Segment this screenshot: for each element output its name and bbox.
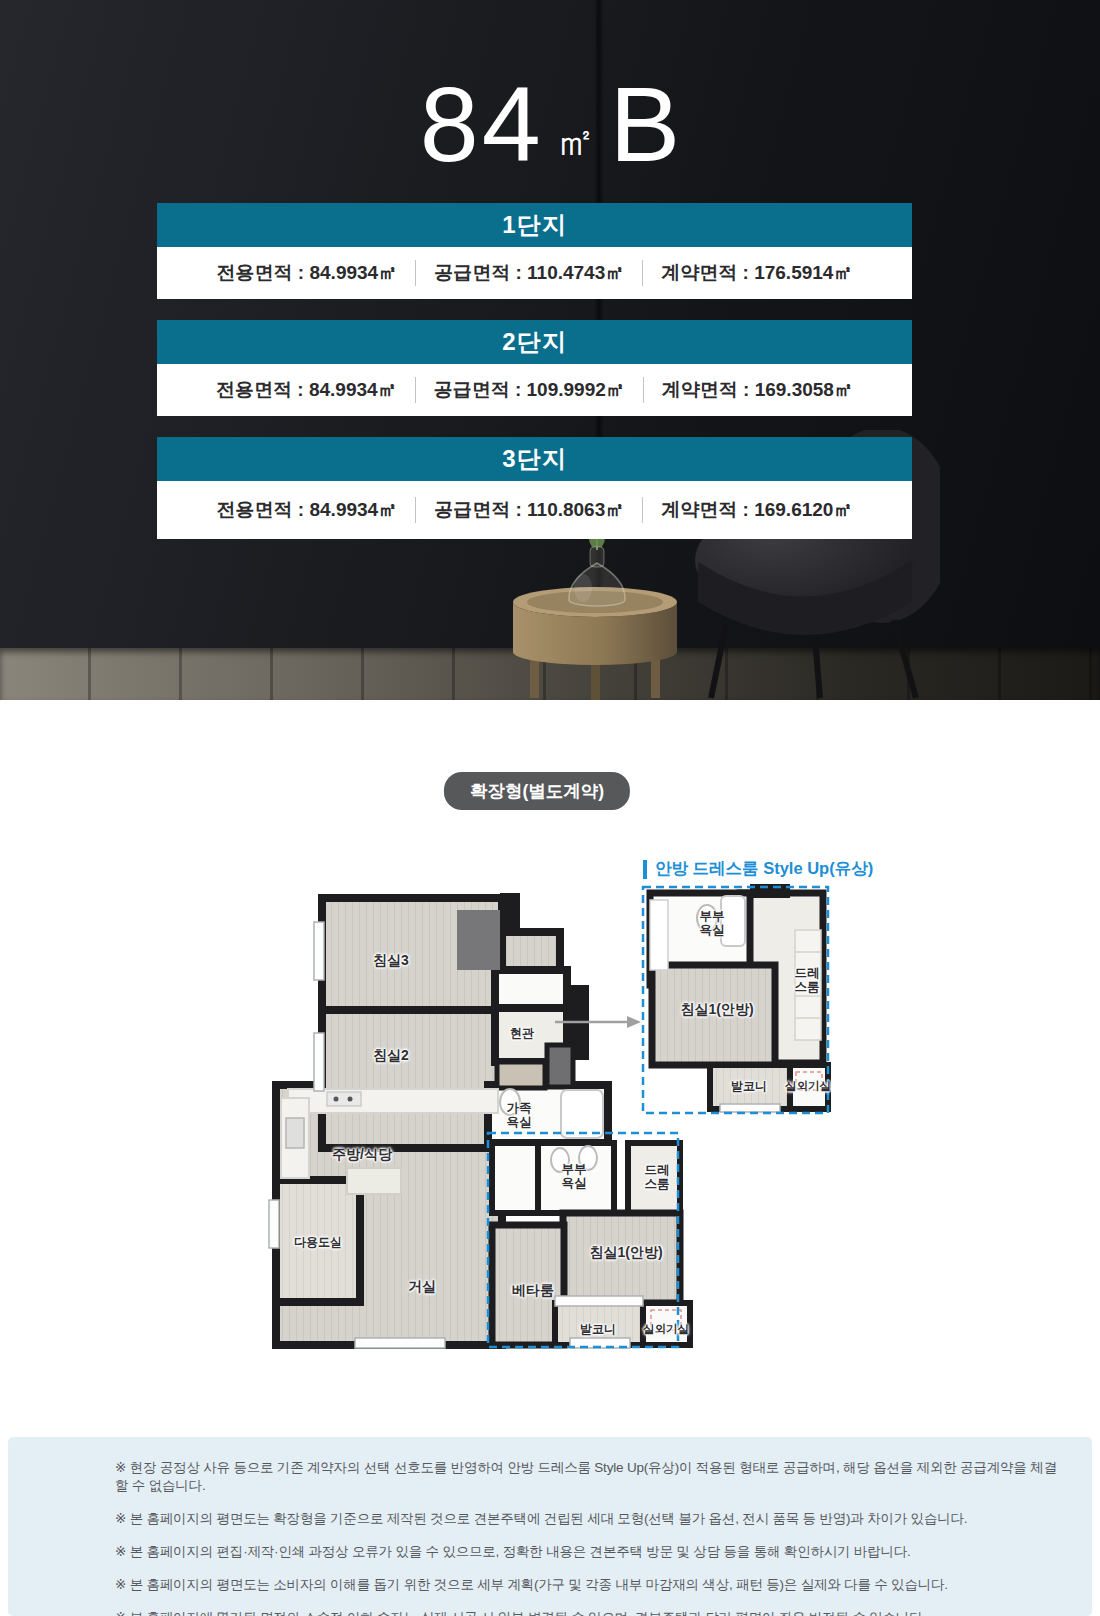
complex-3-title: 3단지	[157, 437, 912, 481]
inset-room-label-master-bedroom: 침실1(안방)	[680, 1001, 753, 1019]
notice-line-5: ※ 본 홈페이지에 명기된 면적의 소수점 이하 숫자는 실제 시공 시 일부 …	[115, 1609, 1062, 1616]
divider	[642, 497, 643, 523]
divider	[642, 260, 643, 286]
notice-line-1: ※ 현장 공정상 사유 등으로 기존 계약자의 선택 선호도를 반영하여 안방 …	[115, 1459, 1062, 1495]
room-label-beta-room: 베타룸	[512, 1282, 554, 1300]
complex-3-group: 3단지 전용면적 : 84.9934㎡ 공급면적 : 110.8063㎡ 계약면…	[157, 437, 912, 539]
notice-line-2: ※ 본 홈페이지의 평면도는 확장형을 기준으로 제작된 것으로 견본주택에 건…	[115, 1510, 1062, 1528]
floorplan-area: 침실3 침실2 현관 가족욕실 주방/식당 다용도실 거실 부부욕실 드레스룸 …	[255, 870, 845, 1360]
notice-box: ※ 현장 공정상 사유 등으로 기존 계약자의 선택 선호도를 반영하여 안방 …	[8, 1437, 1092, 1616]
room-label-balcony: 발코니	[580, 1321, 616, 1338]
divider	[643, 377, 644, 403]
inset-room-label-ac-room: 실외기실	[785, 1079, 831, 1094]
complex-1-group: 1단지 전용면적 : 84.9934㎡ 공급면적 : 110.4743㎡ 계약면…	[157, 203, 912, 299]
inset-room-label-master-bath: 부부욕실	[698, 909, 726, 937]
expansion-type-badge: 확장형(별도계약)	[444, 772, 630, 810]
complex-1-supply-area: 공급면적 : 110.4743㎡	[434, 260, 624, 286]
room-label-family-bath: 가족욕실	[505, 1101, 533, 1129]
complex-1-title: 1단지	[157, 203, 912, 247]
divider	[415, 377, 416, 403]
unit-size: 84	[420, 65, 544, 183]
complex-2-contract-area: 계약면적 : 169.3058㎡	[662, 377, 853, 403]
inset-room-label-dressroom: 드레스룸	[793, 966, 821, 994]
label-accent-bar	[643, 860, 647, 879]
room-label-master-bath: 부부욕실	[560, 1162, 588, 1190]
complex-1-areas: 전용면적 : 84.9934㎡ 공급면적 : 110.4743㎡ 계약면적 : …	[157, 247, 912, 299]
complex-3-areas: 전용면적 : 84.9934㎡ 공급면적 : 110.8063㎡ 계약면적 : …	[157, 481, 912, 539]
unit-size-measure: ㎡	[556, 119, 596, 163]
complex-2-title: 2단지	[157, 320, 912, 364]
vase-illustration	[569, 530, 625, 606]
unit-variant: B	[610, 65, 681, 183]
room-label-kitchen-dining: 주방/식당	[332, 1146, 392, 1164]
room-label-bedroom3: 침실3	[373, 952, 409, 970]
room-label-master-bedroom: 침실1(안방)	[589, 1244, 662, 1262]
complex-2-supply-area: 공급면적 : 109.9992㎡	[434, 377, 625, 403]
hero-section: 84㎡B 1단지 전용면적 : 84.9934㎡ 공급면적 : 110.4743…	[0, 0, 1100, 700]
styleup-option-text: 안방 드레스룸 Style Up(유상)	[655, 858, 873, 880]
notice-line-4: ※ 본 홈페이지의 평면도는 소비자의 이해를 돕기 위한 것으로 세부 계획(…	[115, 1576, 1062, 1594]
complex-3-supply-area: 공급면적 : 110.8063㎡	[434, 497, 624, 523]
page: 84㎡B 1단지 전용면적 : 84.9934㎡ 공급면적 : 110.4743…	[0, 0, 1100, 1616]
unit-type-title: 84㎡B	[0, 64, 1100, 185]
divider	[415, 497, 416, 523]
inset-room-label-balcony: 발코니	[731, 1078, 767, 1095]
room-label-ac-room: 실외기실	[643, 1322, 689, 1337]
complex-2-exclusive-area: 전용면적 : 84.9934㎡	[216, 377, 397, 403]
divider	[415, 260, 416, 286]
complex-2-group: 2단지 전용면적 : 84.9934㎡ 공급면적 : 109.9992㎡ 계약면…	[157, 320, 912, 416]
complex-2-areas: 전용면적 : 84.9934㎡ 공급면적 : 109.9992㎡ 계약면적 : …	[157, 364, 912, 416]
room-label-bedroom2: 침실2	[373, 1047, 409, 1065]
complex-3-exclusive-area: 전용면적 : 84.9934㎡	[217, 497, 398, 523]
complex-3-contract-area: 계약면적 : 169.6120㎡	[661, 497, 852, 523]
complex-1-contract-area: 계약면적 : 176.5914㎡	[661, 260, 852, 286]
room-label-dressroom: 드레스룸	[643, 1163, 671, 1191]
room-label-entrance: 현관	[510, 1025, 534, 1042]
room-label-living: 거실	[408, 1278, 436, 1296]
complex-1-exclusive-area: 전용면적 : 84.9934㎡	[217, 260, 398, 286]
styleup-option-label: 안방 드레스룸 Style Up(유상)	[643, 858, 873, 880]
notice-line-3: ※ 본 홈페이지의 편집·제작·인쇄 과정상 오류가 있을 수 있으므로, 정확…	[115, 1543, 1062, 1561]
room-label-utility: 다용도실	[294, 1234, 342, 1251]
